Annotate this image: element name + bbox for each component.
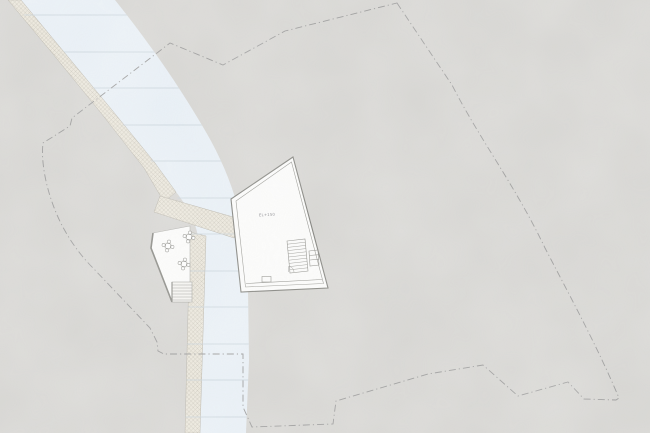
site-plan-drawing: EL+150 [0, 0, 650, 433]
paper-grain-texture [0, 0, 650, 433]
site-plan-canvas: EL+150 [0, 0, 650, 433]
